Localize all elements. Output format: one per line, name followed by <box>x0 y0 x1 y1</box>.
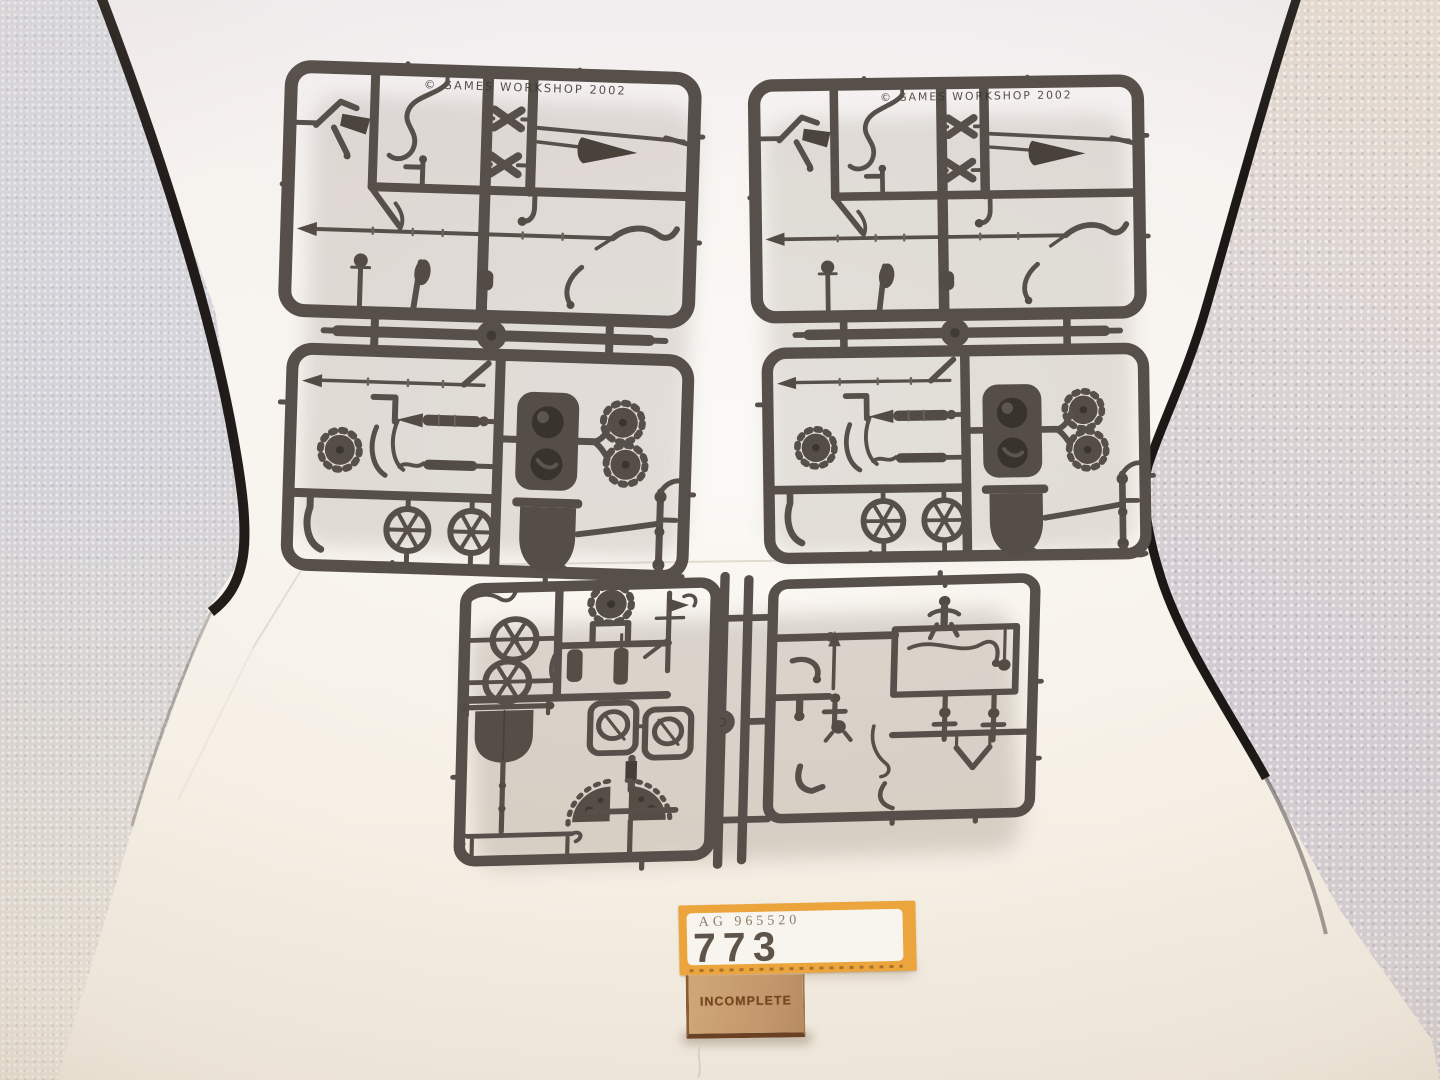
inventory-label: AG 965520 773 <box>678 901 916 976</box>
sprue-joint-rails <box>704 575 774 865</box>
half-gear-part <box>572 787 610 823</box>
banner-pole <box>465 706 550 708</box>
rein-part <box>909 641 998 663</box>
incomplete-tag: INCOMPLETE <box>686 973 806 1039</box>
sprue-bottom-right <box>767 570 1044 827</box>
banner-base <box>468 834 572 837</box>
photo: © GAMES WORKSHOP 2002 <box>0 0 1440 1080</box>
label-number: 773 <box>693 925 904 966</box>
sprue-bottom-left <box>450 574 717 873</box>
canister-part <box>613 648 629 685</box>
arm-part <box>792 659 818 678</box>
sprue-top-left <box>270 60 707 580</box>
sprue-bottom-pair <box>450 566 1044 873</box>
tag-text: INCOMPLETE <box>700 993 792 1008</box>
boot-part <box>798 766 823 792</box>
label-perforation <box>690 965 903 972</box>
tent-edge-left <box>100 0 244 612</box>
canister-part <box>566 649 582 682</box>
sprue-top-right <box>748 75 1155 562</box>
label-panel: AG 965520 773 <box>686 909 903 966</box>
tent-edge-right <box>1145 0 1298 778</box>
stray-thread <box>698 1044 700 1078</box>
half-gear-part <box>628 785 666 821</box>
whip-part <box>871 726 890 777</box>
